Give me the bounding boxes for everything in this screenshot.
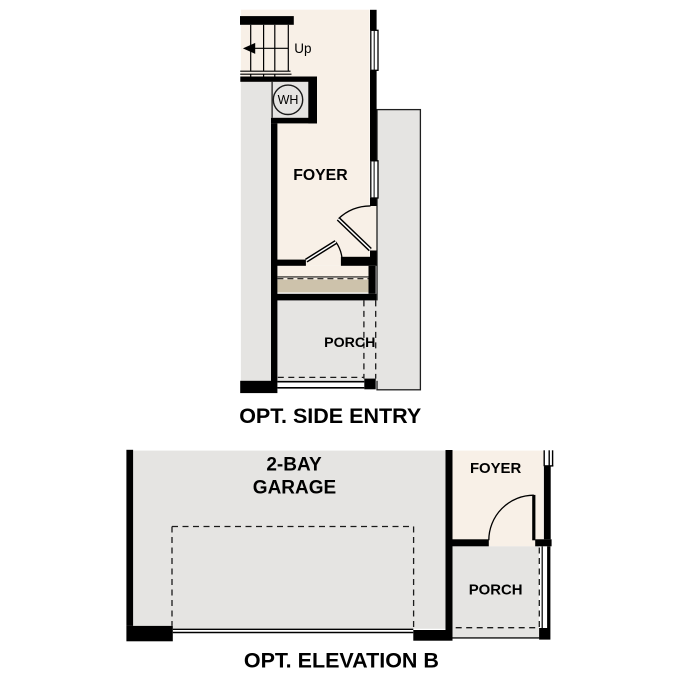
svg-text:GARAGE: GARAGE	[253, 478, 336, 499]
svg-text:FOYER: FOYER	[293, 167, 348, 184]
svg-text:WH: WH	[278, 93, 299, 107]
svg-text:Up: Up	[294, 41, 311, 56]
svg-text:FOYER: FOYER	[470, 461, 522, 477]
svg-text:OPT. ELEVATION B: OPT. ELEVATION B	[244, 648, 439, 672]
svg-text:2-BAY: 2-BAY	[266, 454, 322, 475]
svg-text:OPT. SIDE ENTRY: OPT. SIDE ENTRY	[239, 404, 421, 428]
svg-text:PORCH: PORCH	[469, 583, 523, 599]
svg-text:PORCH: PORCH	[324, 335, 375, 351]
